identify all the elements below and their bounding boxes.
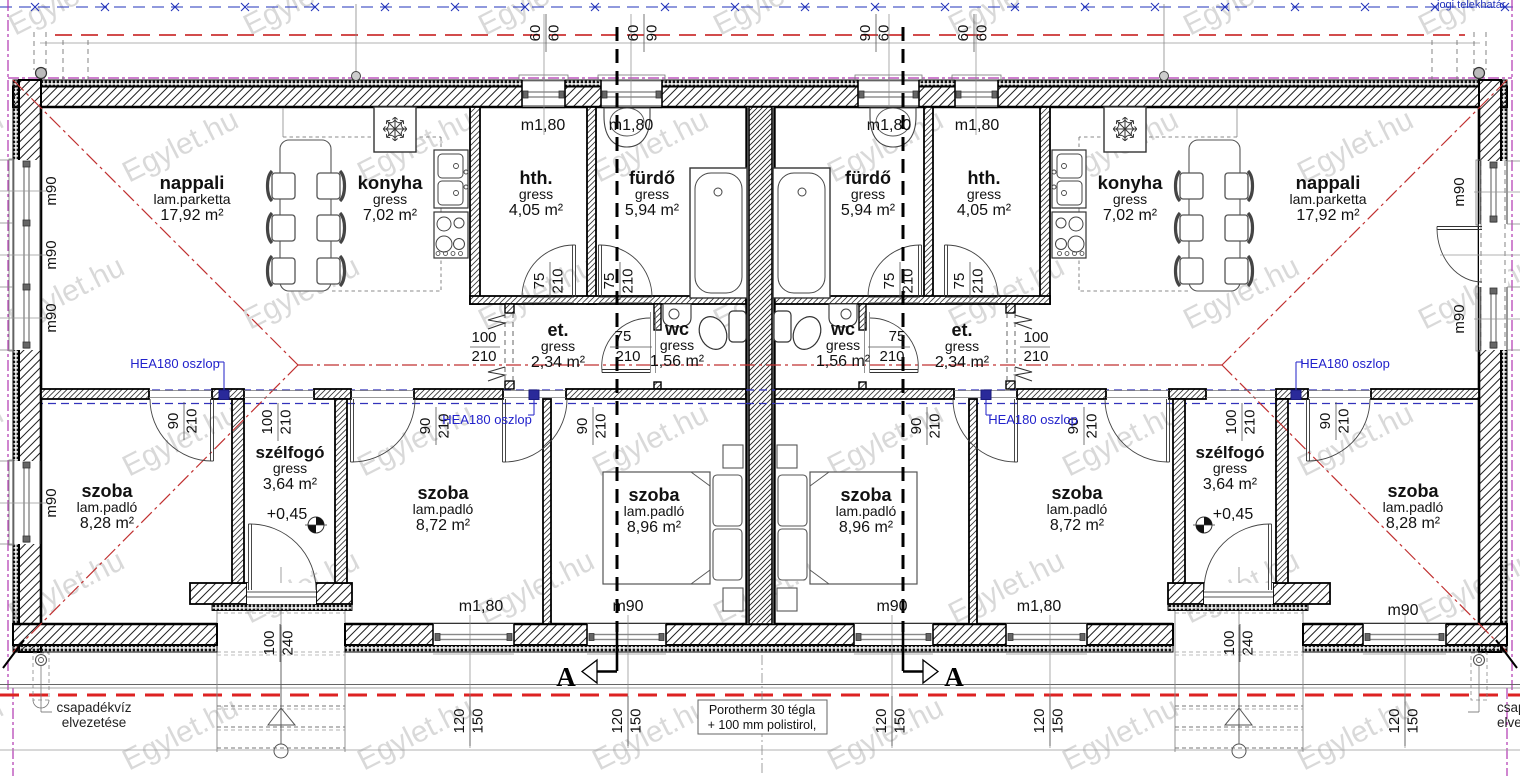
svg-text:szoba: szoba: [628, 485, 680, 505]
svg-text:m90: m90: [43, 240, 60, 269]
svg-text:3,64 m²: 3,64 m²: [1203, 476, 1258, 493]
svg-text:m90: m90: [1451, 304, 1468, 333]
svg-text:100: 100: [1023, 329, 1048, 346]
svg-text:m1,80: m1,80: [521, 117, 566, 134]
svg-text:m90: m90: [43, 176, 60, 205]
svg-text:gress: gress: [1213, 460, 1247, 476]
svg-text:lam.parketta: lam.parketta: [1289, 191, 1366, 207]
svg-text:csapadékvíz: csapadékvíz: [56, 700, 131, 715]
svg-text:1,56 m²: 1,56 m²: [650, 353, 705, 370]
svg-text:240: 240: [1240, 630, 1257, 655]
svg-text:lam.parketta: lam.parketta: [153, 191, 230, 207]
svg-text:m1,80: m1,80: [955, 117, 1000, 134]
svg-text:gress: gress: [967, 186, 1001, 202]
svg-text:HEA180 oszlop: HEA180 oszlop: [130, 356, 220, 371]
svg-text:90: 90: [644, 25, 661, 42]
svg-text:szoba: szoba: [1387, 481, 1439, 501]
svg-text:60: 60: [546, 25, 563, 42]
svg-text:3,64 m²: 3,64 m²: [263, 476, 318, 493]
svg-text:gress: gress: [273, 460, 307, 476]
svg-text:210: 210: [1084, 413, 1101, 438]
svg-text:150: 150: [892, 708, 909, 733]
svg-text:m1,80: m1,80: [459, 598, 504, 615]
svg-text:90: 90: [857, 25, 874, 42]
svg-text:8,72 m²: 8,72 m²: [416, 517, 471, 534]
svg-text:gress: gress: [660, 337, 694, 353]
svg-text:m90: m90: [876, 598, 907, 615]
svg-text:75: 75: [615, 328, 632, 345]
svg-text:HEA180 oszlop: HEA180 oszlop: [988, 412, 1078, 427]
svg-text:et.: et.: [951, 320, 972, 340]
svg-text:210: 210: [471, 348, 496, 365]
svg-text:wc: wc: [664, 319, 689, 339]
svg-text:4,05 m²: 4,05 m²: [957, 202, 1012, 219]
svg-text:konyha: konyha: [1098, 172, 1163, 193]
svg-text:100: 100: [471, 329, 496, 346]
svg-text:75: 75: [881, 273, 898, 290]
svg-text:7,02 m²: 7,02 m²: [1103, 207, 1158, 224]
svg-text:100: 100: [1223, 409, 1240, 434]
svg-text:210: 210: [900, 268, 917, 293]
svg-text:lam.padló: lam.padló: [1383, 499, 1444, 515]
svg-text:210: 210: [927, 413, 944, 438]
svg-text:m90: m90: [1451, 177, 1468, 206]
svg-text:gress: gress: [945, 338, 979, 354]
svg-text:m90: m90: [1387, 602, 1418, 619]
svg-text:gress: gress: [826, 337, 860, 353]
svg-text:gress: gress: [373, 191, 407, 207]
svg-text:210: 210: [615, 348, 640, 365]
svg-text:wc: wc: [830, 319, 855, 339]
svg-text:60: 60: [876, 25, 893, 42]
svg-text:HEA180 oszlop: HEA180 oszlop: [1300, 356, 1390, 371]
svg-text:5,94 m²: 5,94 m²: [625, 202, 680, 219]
svg-text:8,72 m²: 8,72 m²: [1050, 517, 1105, 534]
svg-text:120: 120: [451, 708, 468, 733]
svg-text:lam.padló: lam.padló: [413, 501, 474, 517]
svg-text:150: 150: [628, 708, 645, 733]
svg-text:8,28 m²: 8,28 m²: [80, 515, 135, 532]
svg-text:210: 210: [184, 408, 201, 433]
svg-text:8,96 m²: 8,96 m²: [839, 519, 894, 536]
svg-text:210: 210: [620, 268, 637, 293]
svg-text:szoba: szoba: [81, 481, 133, 501]
svg-text:szoba: szoba: [417, 483, 469, 503]
svg-text:m1,80: m1,80: [1017, 598, 1062, 615]
svg-text:210: 210: [879, 348, 904, 365]
svg-text:90: 90: [908, 418, 925, 435]
svg-text:210: 210: [1336, 408, 1353, 433]
svg-text:8,28 m²: 8,28 m²: [1386, 515, 1441, 532]
svg-text:60: 60: [974, 25, 991, 42]
svg-text:fürdő: fürdő: [845, 168, 891, 188]
svg-text:210: 210: [278, 409, 295, 434]
svg-text:et.: et.: [547, 320, 568, 340]
svg-text:HEA180 oszlop: HEA180 oszlop: [442, 412, 532, 427]
svg-text:90: 90: [574, 418, 591, 435]
svg-text:210: 210: [593, 413, 610, 438]
svg-text:120: 120: [873, 708, 890, 733]
svg-text:2,34 m²: 2,34 m²: [935, 354, 990, 371]
svg-text:210: 210: [1023, 348, 1048, 365]
svg-text:lam.padló: lam.padló: [836, 503, 897, 519]
svg-text:100: 100: [261, 630, 278, 655]
svg-text:60: 60: [955, 25, 972, 42]
svg-text:75: 75: [531, 273, 548, 290]
svg-text:+ 100 mm polistirol,: + 100 mm polistirol,: [708, 718, 817, 732]
svg-text:lam.padló: lam.padló: [77, 499, 138, 515]
svg-text:17,92 m²: 17,92 m²: [1296, 207, 1360, 224]
svg-text:szoba: szoba: [1051, 483, 1103, 503]
svg-text:100: 100: [1221, 630, 1238, 655]
svg-text:m90: m90: [43, 488, 60, 517]
svg-text:100: 100: [259, 409, 276, 434]
svg-text:120: 120: [1386, 708, 1403, 733]
svg-text:120: 120: [609, 708, 626, 733]
svg-text:90: 90: [165, 413, 182, 430]
svg-text:17,92 m²: 17,92 m²: [160, 207, 224, 224]
svg-text:gress: gress: [541, 338, 575, 354]
svg-text:75: 75: [951, 273, 968, 290]
svg-text:gress: gress: [519, 186, 553, 202]
svg-text:+0,45: +0,45: [267, 506, 308, 523]
svg-text:60: 60: [625, 25, 642, 42]
svg-text:gress: gress: [1113, 191, 1147, 207]
svg-text:gress: gress: [851, 186, 885, 202]
svg-text:4,05 m²: 4,05 m²: [509, 202, 564, 219]
svg-text:7,02 m²: 7,02 m²: [363, 207, 418, 224]
svg-text:150: 150: [1405, 708, 1422, 733]
svg-text:elvezetése: elvezetése: [1497, 715, 1520, 730]
svg-text:csapadékvíz: csapadékvíz: [1497, 700, 1520, 715]
svg-text:120: 120: [1031, 708, 1048, 733]
svg-text:60: 60: [527, 25, 544, 42]
svg-text:210: 210: [1242, 409, 1259, 434]
svg-text:90: 90: [417, 418, 434, 435]
svg-text:lam.padló: lam.padló: [624, 503, 685, 519]
svg-text:nappali: nappali: [1296, 172, 1361, 193]
svg-text:210: 210: [970, 268, 987, 293]
svg-text:A: A: [556, 662, 576, 692]
svg-text:Porotherm 30 tégla: Porotherm 30 tégla: [709, 703, 815, 717]
svg-text:m90: m90: [612, 598, 643, 615]
svg-text:szoba: szoba: [840, 485, 892, 505]
svg-text:lam.padló: lam.padló: [1047, 501, 1108, 517]
svg-text:1,56 m²: 1,56 m²: [816, 353, 871, 370]
svg-text:5,94 m²: 5,94 m²: [841, 202, 896, 219]
svg-text:m1,80: m1,80: [867, 117, 912, 134]
svg-text:hth.: hth.: [968, 168, 1001, 188]
svg-text:jogi telekhatár: jogi telekhatár: [1436, 0, 1506, 11]
svg-text:konyha: konyha: [358, 172, 423, 193]
svg-text:hth.: hth.: [520, 168, 553, 188]
svg-text:90: 90: [1317, 413, 1334, 430]
svg-text:150: 150: [1050, 708, 1067, 733]
svg-text:A: A: [944, 662, 964, 692]
svg-text:150: 150: [470, 708, 487, 733]
svg-text:8,96 m²: 8,96 m²: [627, 519, 682, 536]
svg-text:+0,45: +0,45: [1213, 506, 1254, 523]
svg-text:nappali: nappali: [160, 172, 225, 193]
svg-text:2,34 m²: 2,34 m²: [531, 354, 586, 371]
svg-text:75: 75: [601, 273, 618, 290]
svg-text:elvezetése: elvezetése: [62, 715, 127, 730]
svg-text:210: 210: [550, 268, 567, 293]
svg-text:m1,80: m1,80: [609, 117, 654, 134]
svg-text:fürdő: fürdő: [629, 168, 675, 188]
svg-text:gress: gress: [635, 186, 669, 202]
svg-text:240: 240: [280, 630, 297, 655]
svg-text:75: 75: [889, 328, 906, 345]
svg-text:m90: m90: [43, 303, 60, 332]
